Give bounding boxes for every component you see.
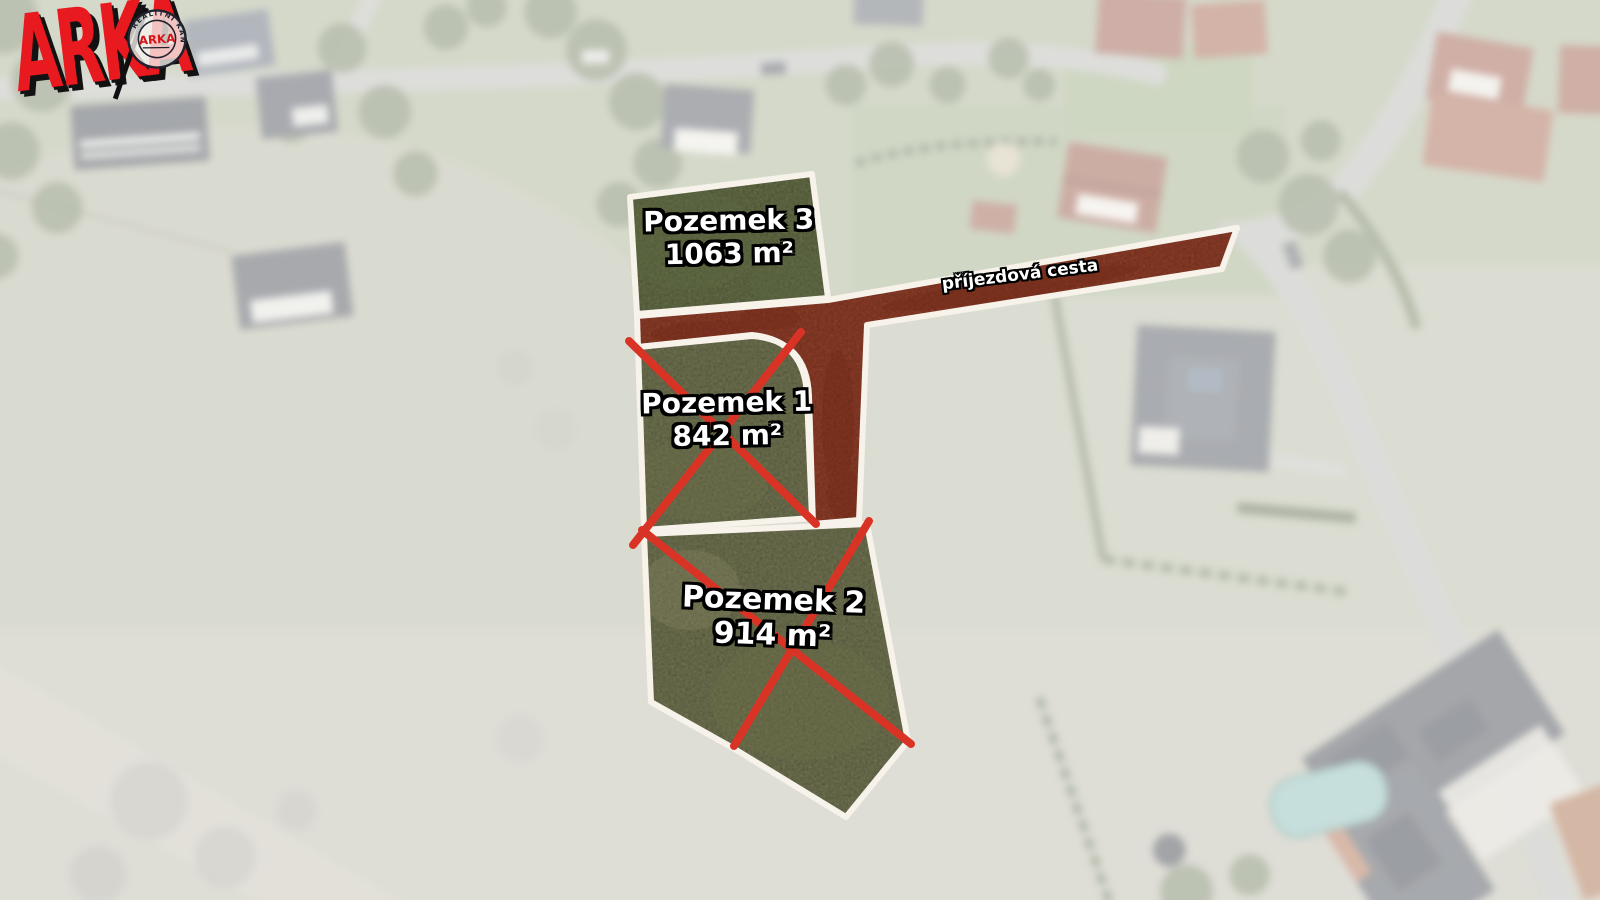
stamp-word: ARKA <box>138 31 176 48</box>
arka-logo: ARKA REALITNÍ KANCELÁŘ ARKA <box>0 0 230 130</box>
aerial-parcel-map: Pozemek 3 1063 m² Pozemek 1 842 m² Pozem… <box>0 0 1600 900</box>
parcel-area: 914 m² <box>680 615 864 657</box>
parcel-area: 1063 m² <box>643 236 815 272</box>
parcel-name: Pozemek 2 <box>681 579 865 621</box>
parcel-name: Pozemek 3 <box>643 202 815 238</box>
parcel-pozemek-2-label: Pozemek 2 914 m² <box>680 579 866 656</box>
arka-stamp: REALITNÍ KANCELÁŘ ARKA <box>121 3 193 75</box>
parcel-pozemek-3-label: Pozemek 3 1063 m² <box>643 202 815 271</box>
parcel-name: Pozemek 1 <box>641 384 813 420</box>
parcel-pozemek-1-label: Pozemek 1 842 m² <box>641 384 813 453</box>
parcel-area: 842 m² <box>641 418 813 454</box>
